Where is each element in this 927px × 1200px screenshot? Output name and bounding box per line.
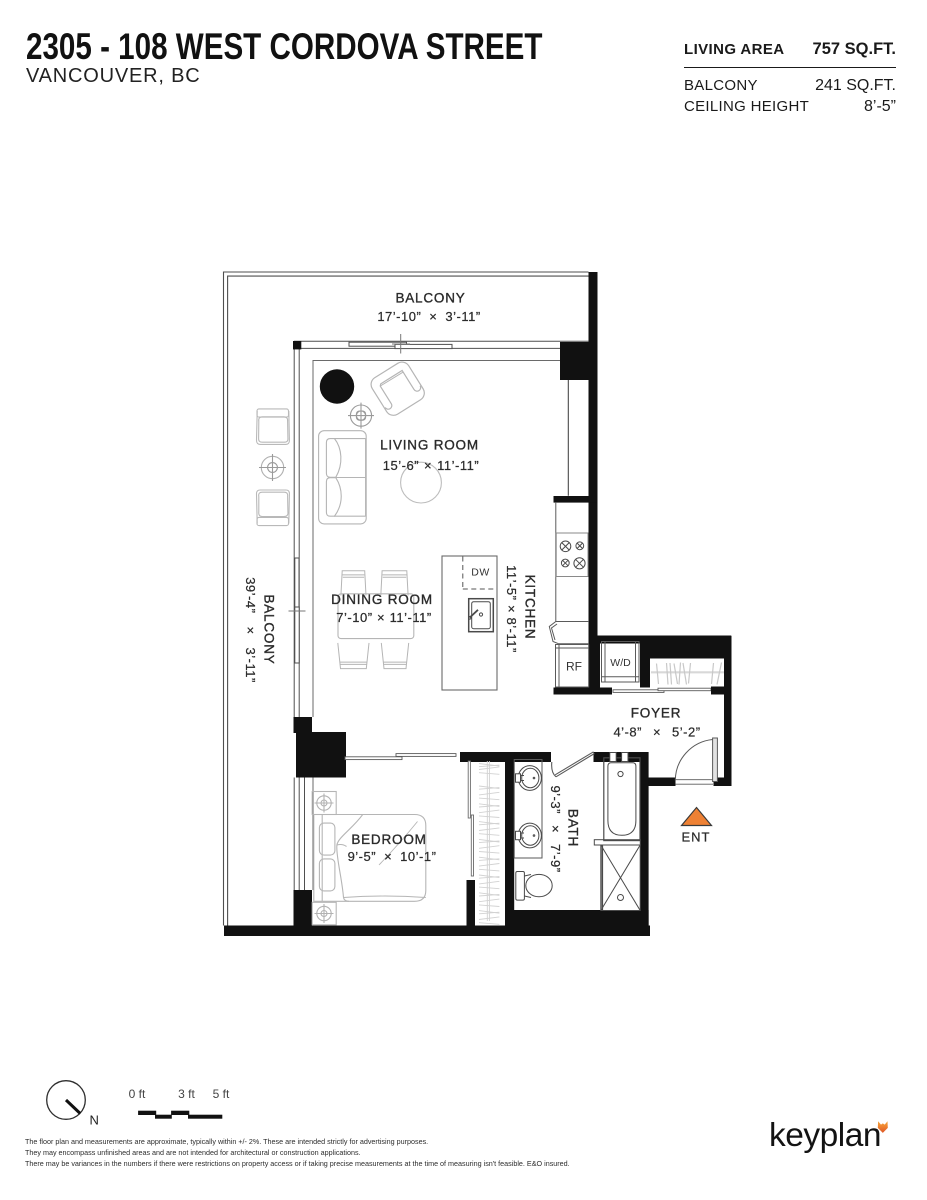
svg-text:RF: RF: [566, 660, 582, 674]
svg-text:11’-5”×8’-11”: 11’-5”×8’-11”: [504, 565, 519, 653]
svg-text:FOYER: FOYER: [631, 706, 682, 721]
svg-text:W/D: W/D: [610, 657, 631, 669]
svg-text:N: N: [90, 1113, 99, 1128]
svg-text:4’-8”×5’-2”: 4’-8”×5’-2”: [613, 725, 700, 740]
svg-text:7’-10”×11’-11”: 7’-10”×11’-11”: [336, 610, 431, 625]
svg-text:DW: DW: [471, 567, 490, 579]
svg-text:9’-5”×10’-1”: 9’-5”×10’-1”: [348, 849, 437, 864]
svg-text:BEDROOM: BEDROOM: [351, 832, 426, 847]
svg-text:BALCONY: BALCONY: [262, 594, 277, 664]
svg-text:5 ft: 5 ft: [213, 1087, 230, 1101]
svg-text:39’-4”×3’-11”: 39’-4”×3’-11”: [243, 577, 258, 683]
svg-text:15’-6”×11’-11”: 15’-6”×11’-11”: [383, 458, 479, 473]
svg-text:ENT: ENT: [682, 830, 711, 845]
svg-text:17’-10”×3’-11”: 17’-10”×3’-11”: [377, 309, 480, 324]
svg-text:KITCHEN: KITCHEN: [523, 575, 538, 640]
svg-text:9’-3”×7’-9”: 9’-3”×7’-9”: [548, 785, 563, 872]
svg-text:0 ft: 0 ft: [129, 1087, 146, 1101]
svg-text:BATH: BATH: [566, 809, 581, 847]
svg-text:BALCONY: BALCONY: [395, 291, 465, 306]
svg-text:DINING ROOM: DINING ROOM: [331, 592, 433, 607]
svg-text:3 ft: 3 ft: [178, 1087, 195, 1101]
svg-text:LIVING ROOM: LIVING ROOM: [380, 438, 479, 453]
